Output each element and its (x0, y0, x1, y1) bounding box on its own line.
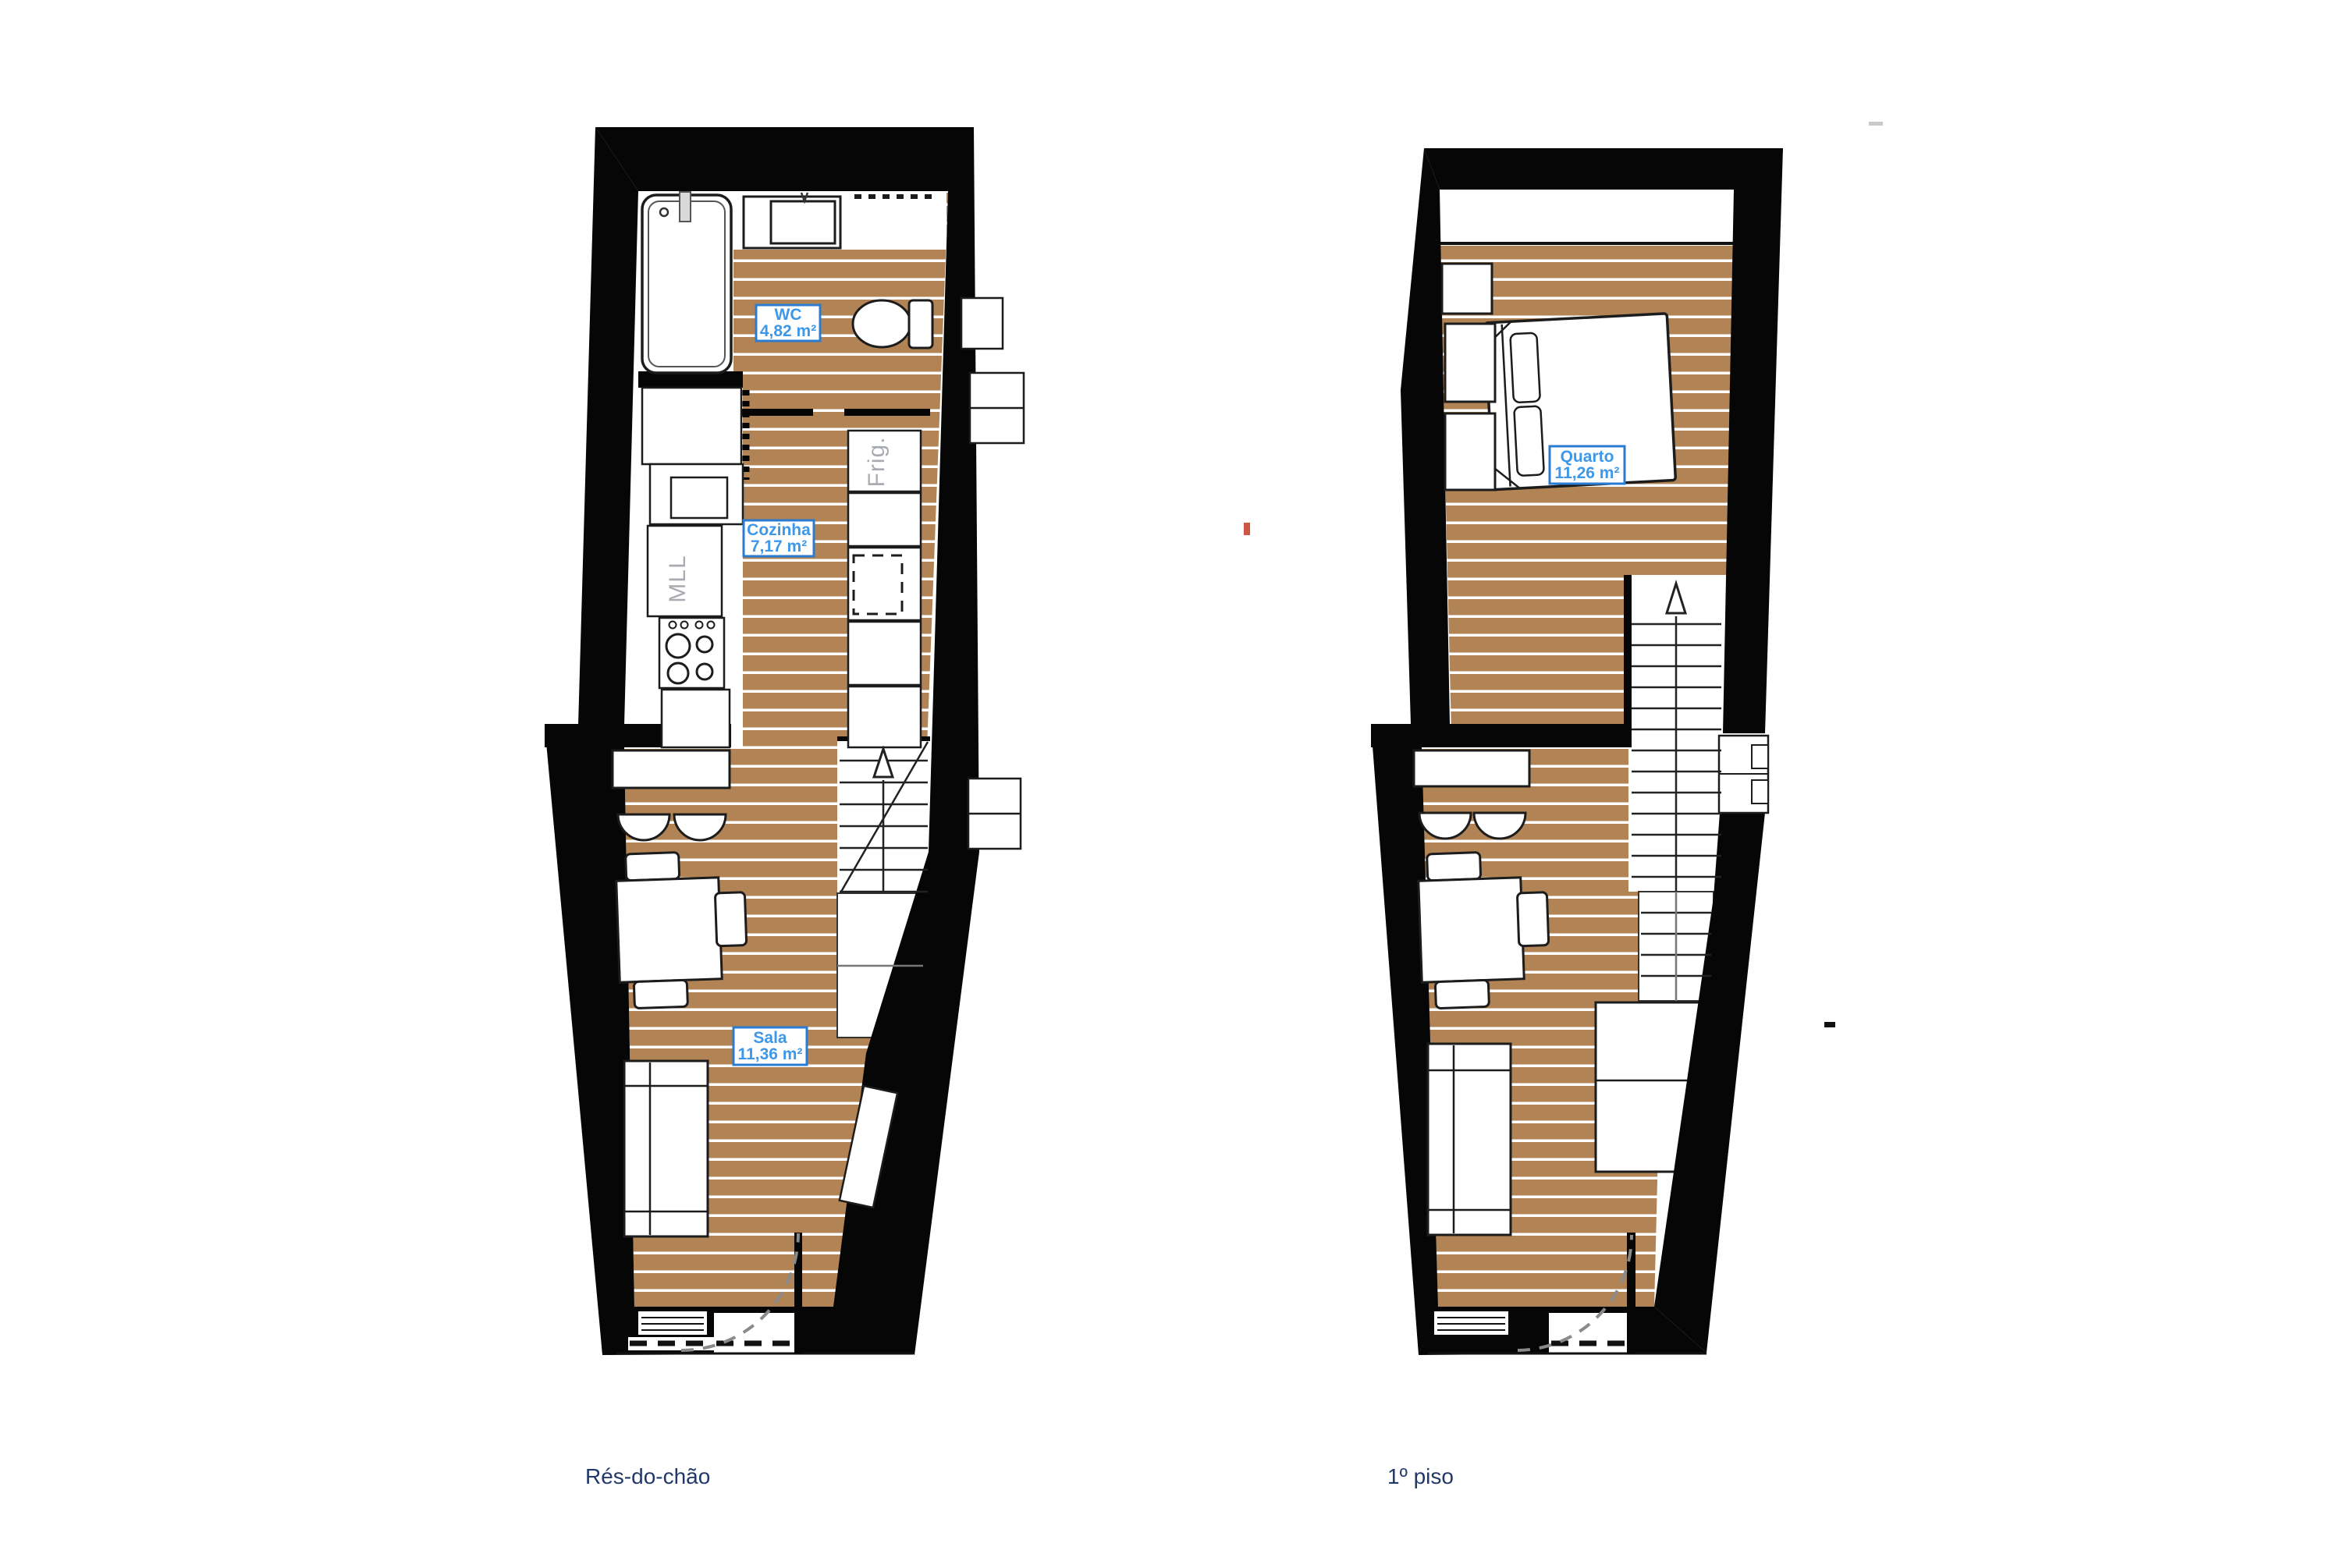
entry-door-leaf (794, 1233, 802, 1353)
kitchen-cabinet-e (848, 548, 921, 620)
kitchen-cabinet-f (848, 622, 921, 685)
label-name: Cozinha (747, 521, 811, 539)
kitchen-cabinet-a (642, 388, 741, 464)
window-behind-toilet (961, 298, 1003, 349)
first-floor-plan: Quarto 11,26 m² (1371, 148, 1783, 1355)
floor-plan-sheet: MLL Frig. (0, 0, 2344, 1568)
door-opening (714, 1313, 798, 1353)
bedroom-side-table (1442, 264, 1492, 314)
door-opening (1549, 1313, 1629, 1353)
kitchen-cabinet-c (662, 690, 730, 747)
wall-wc-divider-a (741, 409, 813, 416)
chair-bottom (634, 980, 687, 1008)
pillow (1514, 406, 1544, 476)
bathtub-faucet (680, 192, 691, 222)
floor-plan-canvas: MLL Frig. (0, 0, 2344, 1568)
chair-top (1427, 853, 1481, 881)
caption-first-floor: 1º piso (1387, 1464, 1454, 1488)
sofa-ground (624, 1061, 708, 1236)
window-sash (1752, 745, 1768, 768)
kitchen-cabinet-d (848, 493, 921, 546)
fridge-label: Frig. (864, 437, 890, 488)
balcony-zone (1440, 190, 1734, 246)
kitchen-cabinet-b-inner (671, 477, 727, 518)
room-label-cozinha: Cozinha 7,17 m² (744, 520, 814, 556)
room-label-wc: WC 4,82 m² (756, 305, 820, 341)
label-name: WC (775, 306, 802, 324)
chair-bottom (1435, 980, 1489, 1008)
wall-left-upper (578, 127, 638, 725)
toilet-bowl (853, 300, 911, 347)
chair-right (715, 892, 746, 946)
wall-top (1424, 148, 1783, 190)
label-area: 11,26 m² (1555, 464, 1620, 482)
ground-floor-plan: MLL Frig. (545, 127, 1024, 1355)
toilet-cistern (909, 300, 932, 348)
counter (613, 750, 730, 788)
nightstand (1445, 324, 1495, 402)
wall-stairwell-left (1624, 575, 1632, 747)
label-area: 11,36 m² (738, 1045, 803, 1063)
kitchen-cabinet-g (848, 686, 921, 747)
pillow (1510, 333, 1540, 403)
window-sash (1752, 780, 1768, 804)
label-area: 7,17 m² (751, 537, 807, 555)
chair-right (1517, 892, 1548, 946)
wall-top (595, 127, 974, 191)
window-right-wall (1719, 736, 1768, 813)
washbasin (771, 201, 835, 243)
sofa-body (624, 1061, 708, 1236)
dining-table (1419, 878, 1524, 982)
room-label-sala: Sala 11,36 m² (733, 1027, 807, 1065)
chair-top (626, 853, 680, 881)
dining-table (616, 878, 722, 982)
label-name: Sala (753, 1029, 787, 1047)
wall-wc-divider-b (844, 409, 930, 416)
sofa-body (1428, 1044, 1511, 1235)
nightstand (1445, 413, 1495, 490)
room-label-quarto: Quarto 11,26 m² (1550, 446, 1625, 484)
label-area: 4,82 m² (760, 322, 816, 340)
label-name: Quarto (1561, 448, 1614, 466)
gray-tick (1869, 122, 1883, 126)
sofa-first (1428, 1044, 1511, 1235)
red-mark (1244, 523, 1250, 535)
caption-ground-floor: Rés-do-chão (585, 1464, 710, 1488)
black-tick (1824, 1022, 1835, 1027)
dishwasher-label: MLL (665, 555, 691, 602)
counter (1414, 750, 1529, 786)
